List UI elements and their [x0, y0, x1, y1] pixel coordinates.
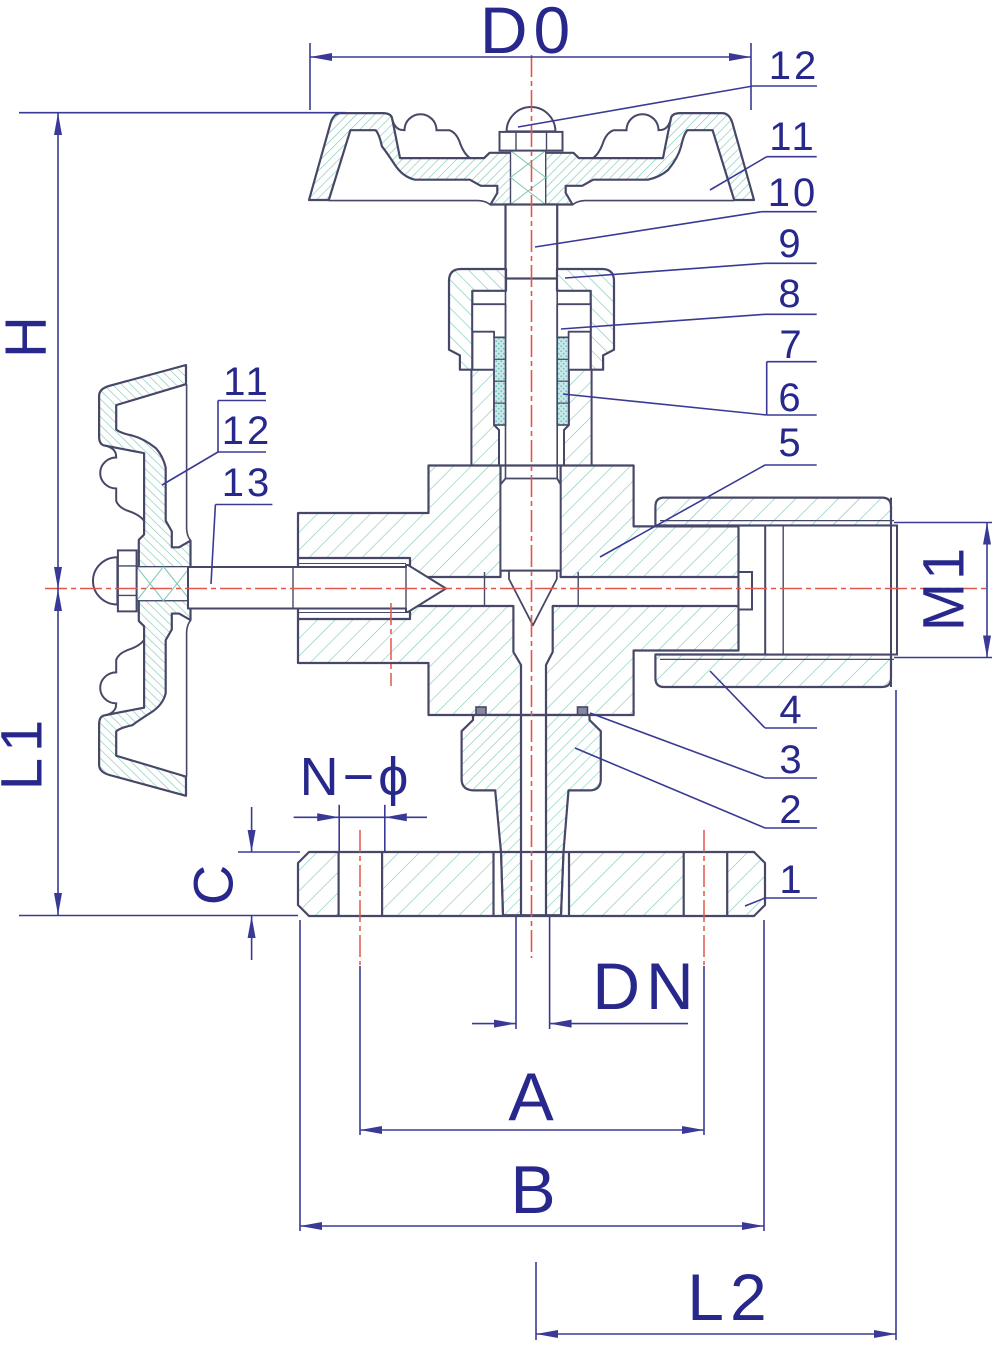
svg-text:9: 9 — [778, 222, 803, 266]
svg-text:N−ϕ: N−ϕ — [300, 747, 413, 807]
svg-text:1: 1 — [779, 858, 804, 902]
svg-text:6: 6 — [778, 376, 803, 420]
svg-text:C: C — [182, 859, 245, 905]
svg-text:DN: DN — [592, 949, 699, 1023]
svg-text:M1: M1 — [912, 545, 977, 632]
svg-text:B: B — [510, 1152, 561, 1228]
svg-text:13: 13 — [222, 461, 273, 505]
svg-text:H: H — [0, 310, 59, 358]
svg-text:L2: L2 — [687, 1260, 772, 1334]
svg-text:12: 12 — [222, 409, 273, 453]
svg-text:11: 11 — [769, 115, 817, 159]
svg-text:10: 10 — [768, 171, 819, 215]
svg-text:3: 3 — [779, 738, 804, 782]
svg-text:2: 2 — [779, 788, 804, 832]
svg-text:L1: L1 — [0, 714, 55, 791]
svg-text:11: 11 — [223, 360, 271, 404]
svg-text:5: 5 — [778, 421, 803, 465]
svg-text:12: 12 — [769, 44, 820, 88]
svg-text:A: A — [508, 1059, 559, 1135]
svg-text:8: 8 — [778, 272, 803, 316]
svg-text:4: 4 — [779, 688, 804, 732]
svg-text:D0: D0 — [480, 0, 576, 67]
svg-text:7: 7 — [779, 323, 804, 367]
